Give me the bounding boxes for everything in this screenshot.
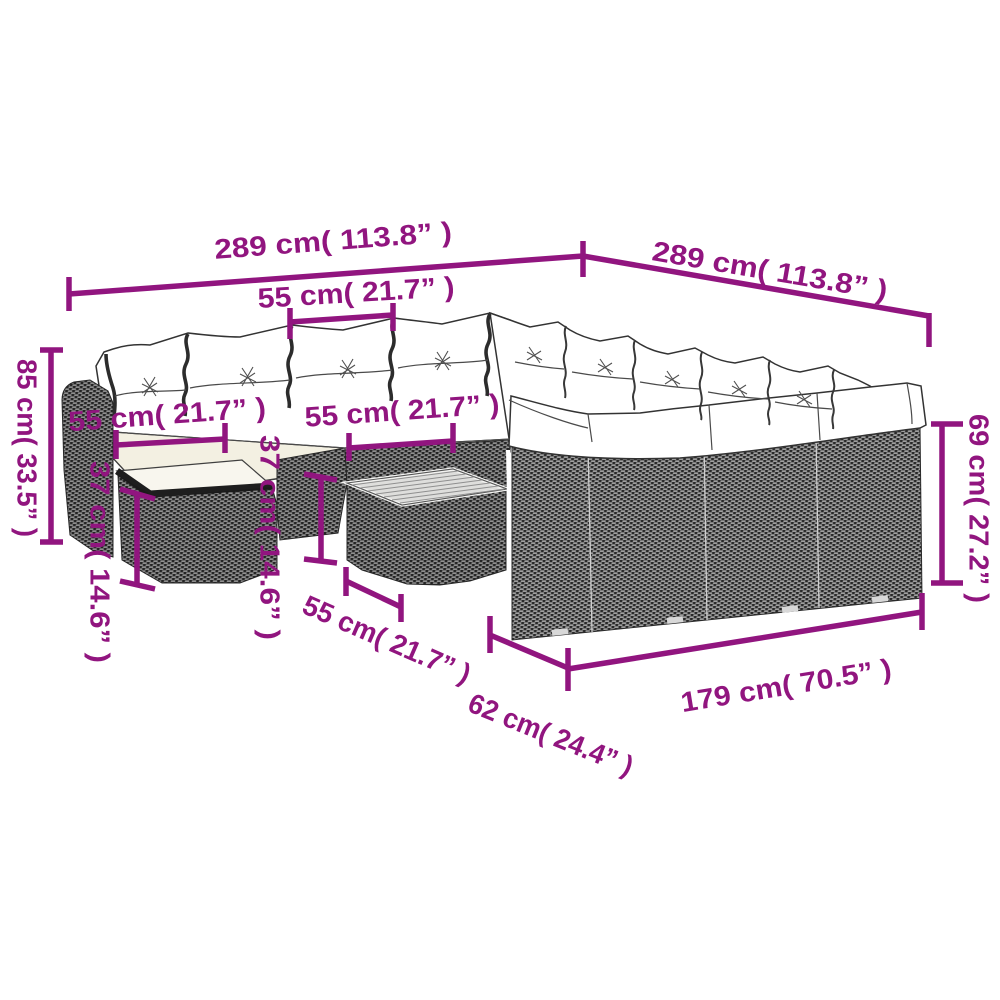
svg-text:62 cm( 24.4” ): 62 cm( 24.4” ) [464,687,638,781]
svg-text:69 cm( 27.2” ): 69 cm( 27.2” ) [964,414,995,603]
svg-text:37 cm( 14.6” ): 37 cm( 14.6” ) [255,435,286,640]
svg-text:289 cm( 113.8” ): 289 cm( 113.8” ) [650,235,890,305]
svg-text:37 cm( 14.6” ): 37 cm( 14.6” ) [85,461,116,663]
svg-text:289 cm( 113.8” ): 289 cm( 113.8” ) [213,216,453,265]
svg-text:85 cm( 33.5” ): 85 cm( 33.5” ) [12,359,43,537]
svg-text:179 cm( 70.5” ): 179 cm( 70.5” ) [678,653,893,718]
svg-text:55 cm( 21.7” ): 55 cm( 21.7” ) [298,589,475,689]
